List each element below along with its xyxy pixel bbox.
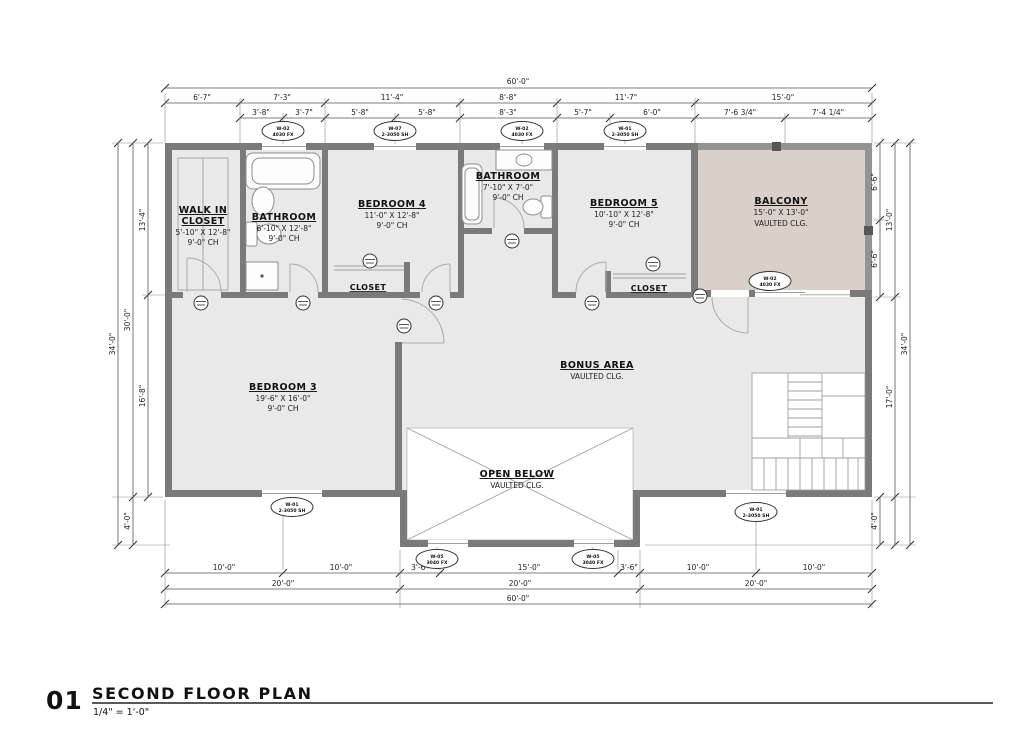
room-size: 19'-6" X 16'-0" (256, 394, 311, 403)
dim-label: 10'-0" (687, 563, 710, 572)
room-ceiling: 9'-0" CH (267, 404, 298, 413)
dim-label: 11'-7" (615, 93, 638, 102)
door-tag-icon (505, 234, 519, 248)
dim-label: 34'-0" (900, 333, 909, 356)
window-tag-id: W-01 (618, 126, 631, 132)
dim-label: 17'-0" (885, 386, 894, 409)
dim-label: 15'-0" (772, 93, 795, 102)
dim-label: 13'-0" (885, 209, 894, 232)
room-size: 5'-10" X 12'-8" (176, 228, 231, 237)
dim-label: 6'-0" (643, 108, 661, 117)
room-ceiling: 9'-0" CH (268, 234, 299, 243)
door-tag-icon (397, 319, 411, 333)
window-tag-size: 2-3050 SH (612, 132, 639, 138)
door-tag-icon (429, 296, 443, 310)
dim-label: 10'-0" (803, 563, 826, 572)
dim-label: 15'-0" (518, 563, 541, 572)
dim-label: 7'-3" (273, 93, 291, 102)
window-tag-size: 4030 FX (272, 132, 294, 138)
staircase (752, 373, 865, 490)
dim-label: 3'-6" (620, 563, 638, 572)
room-ceiling: VAULTED CLG. (570, 372, 624, 381)
room-title: BONUS AREA (560, 360, 634, 371)
room-ceiling: 9'-0" CH (608, 220, 639, 229)
dim-label: 30'-0" (123, 309, 132, 332)
dim-label: 8'-8" (499, 93, 517, 102)
room-title: OPEN BELOW (480, 469, 555, 480)
room-ceiling: 9'-0" CH (376, 221, 407, 230)
closet-label: CLOSET (631, 284, 668, 293)
window-tag-id: W-02 (763, 276, 776, 282)
window-tag-id: W-07 (388, 126, 401, 132)
room-ceiling: VAULTED CLG. (490, 481, 544, 490)
window-tag-size: 4030 FX (759, 282, 781, 288)
dim-label: 7'-4 1/4" (812, 108, 844, 117)
dim-label: 11'-4" (381, 93, 404, 102)
window-tag-size: 2-3050 SH (382, 132, 409, 138)
room-title: BEDROOM 3 (249, 382, 317, 393)
dim-label: 60'-0" (507, 77, 530, 86)
dim-label: 6'-6" (870, 173, 879, 191)
room-title: WALK IN (179, 205, 227, 216)
dim-label: 5'-7" (574, 108, 592, 117)
room-ceiling: 9'-0" CH (187, 238, 218, 247)
room-size: 7'-10" X 7'-0" (483, 183, 533, 192)
dim-label: 10'-0" (213, 563, 236, 572)
drawing-number: 01 (46, 686, 83, 715)
dim-label: 4'-0" (870, 512, 879, 530)
floor-plan-sheet: 60'-0" 6'-7" 7'-3" 11'-4" 8'-8" 11'-7" 1… (0, 0, 1024, 754)
room-size: 6'-10" X 12'-8" (257, 224, 312, 233)
dim-label: 7'-6 3/4" (724, 108, 756, 117)
window-tag-id: W-02 (276, 126, 289, 132)
door-tag-icon (585, 296, 599, 310)
dim-label: 8'-3" (499, 108, 517, 117)
window-tag-id: W-01 (285, 502, 298, 508)
dim-label: 10'-0" (330, 563, 353, 572)
room-size: 15'-0" X 13'-0" (754, 208, 809, 217)
drawing-title: SECOND FLOOR PLAN (92, 684, 313, 703)
room-title: BATHROOM (252, 212, 316, 223)
dim-label: 5'-8" (351, 108, 369, 117)
door-tag-icon (194, 296, 208, 310)
window-tag-size: 2-3050 SH (279, 508, 306, 514)
room-size: 10'-10" X 12'-8" (594, 210, 654, 219)
room-ceiling: VAULTED CLG. (754, 219, 808, 228)
closet-label: CLOSET (350, 283, 387, 292)
dim-label: 20'-0" (745, 579, 768, 588)
door-tag-icon (693, 289, 707, 303)
room-title: CLOSET (182, 216, 225, 227)
dim-label: 16'-8" (138, 385, 147, 408)
window-tag-size: 3040 FX (426, 560, 448, 566)
window-tag-id: W-02 (515, 126, 528, 132)
door-tag-icon (646, 257, 660, 271)
room-title: BEDROOM 5 (590, 198, 658, 209)
dim-label: 6'-7" (193, 93, 211, 102)
window-tag-size: 3040 FX (582, 560, 604, 566)
title-block: 01 SECOND FLOOR PLAN 1/4" = 1'-0" (46, 684, 993, 718)
room-ceiling: 9'-0" CH (492, 193, 523, 202)
dim-label: 60'-0" (507, 594, 530, 603)
window-tag-size: 4030 FX (511, 132, 533, 138)
dim-label: 5'-8" (418, 108, 436, 117)
window-tag-id: W-01 (749, 507, 762, 513)
dim-label: 6'-6" (870, 250, 879, 268)
room-title: BEDROOM 4 (358, 199, 426, 210)
window-tag-size: 2-3050 SH (743, 513, 770, 519)
room-title: BATHROOM (476, 171, 540, 182)
dim-label: 3'-8" (252, 108, 270, 117)
dim-label: 3'-7" (295, 108, 313, 117)
door-tag-icon (363, 254, 377, 268)
dim-label: 4'-0" (123, 512, 132, 530)
dim-label: 20'-0" (272, 579, 295, 588)
window-tag-id: W-05 (586, 554, 599, 560)
room-title: BALCONY (754, 196, 807, 207)
window-tag-id: W-05 (430, 554, 443, 560)
dim-label: 13'-4" (138, 209, 147, 232)
drawing-scale: 1/4" = 1'-0" (93, 707, 149, 718)
room-size: 11'-0" X 12'-8" (365, 211, 420, 220)
floor-plan-drawing: 60'-0" 6'-7" 7'-3" 11'-4" 8'-8" 11'-7" 1… (0, 0, 1024, 754)
dim-label: 34'-0" (108, 333, 117, 356)
dim-label: 20'-0" (509, 579, 532, 588)
door-tag-icon (296, 296, 310, 310)
